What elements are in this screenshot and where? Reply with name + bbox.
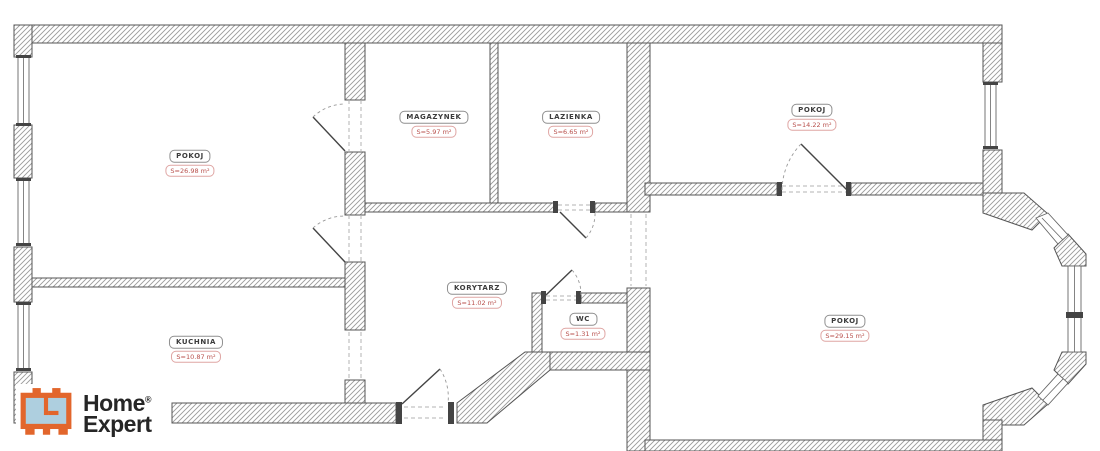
walls: [14, 25, 1086, 451]
wall-wc-left: [532, 293, 542, 352]
wall-wc-top: [581, 293, 627, 303]
wall-corridor-diagonal: [457, 352, 550, 423]
room-area: S=29.15 m²: [820, 330, 869, 342]
window-sills: [16, 55, 1083, 371]
door-leaf-entrance: [402, 369, 440, 404]
home-expert-logo-icon: [18, 386, 74, 442]
wall-left-pier-2: [14, 125, 32, 178]
room-area: S=11.02 m²: [452, 297, 501, 309]
wall-magazynek-lazienka: [490, 43, 498, 203]
room-area: S=10.87 m²: [171, 351, 220, 363]
door-leaf-pokoj2: [801, 144, 849, 192]
logo-icon-foot-1: [25, 426, 34, 434]
wall-left-pier-1: [14, 25, 32, 57]
wall-v1-a: [345, 43, 365, 100]
wall-v1-c: [345, 262, 365, 330]
registered-mark: ®: [145, 394, 151, 404]
room-label-lazienka: LAZIENKA S=6.65 m²: [542, 111, 600, 138]
bay-corner-bottom: [983, 388, 1048, 425]
home-expert-logo: Home® Expert: [16, 384, 158, 444]
wall-pokoj2-bottom-left: [645, 183, 777, 195]
wall-top: [16, 25, 1002, 43]
room-name: POKOJ: [791, 104, 833, 117]
room-name: MAGAZYNEK: [399, 111, 468, 124]
door-leaf-pokoj1-magazynek: [313, 117, 345, 151]
wall-left-pier-3: [14, 247, 32, 302]
logo-icon-inner-wall: [48, 411, 58, 415]
door-leaf-lazienka: [560, 212, 586, 238]
room-label-kuchnia: KUCHNIA S=10.87 m²: [169, 336, 223, 363]
room-name: KUCHNIA: [169, 336, 223, 349]
floor-plan-drawing: [0, 0, 1100, 451]
room-area: S=5.97 m²: [411, 126, 456, 138]
room-area: S=14.22 m²: [787, 119, 836, 131]
wall-pokoj2-right-pier-1: [983, 43, 1002, 82]
wall-maglaz-bottom-left: [365, 203, 555, 212]
room-area: S=6.65 m²: [548, 126, 593, 138]
room-area: S=26.98 m²: [165, 165, 214, 177]
room-name: POKOJ: [824, 315, 866, 328]
wall-pokoj2-bottom-right: [851, 183, 1002, 195]
floor-plan-page: POKOJ S=26.98 m² MAGAZYNEK S=5.97 m² LAZ…: [0, 0, 1100, 451]
bay-corner-top: [983, 193, 1048, 230]
wall-kitchen-top: [32, 278, 348, 287]
room-name: POKOJ: [169, 150, 211, 163]
logo-icon-tab-left: [33, 388, 41, 395]
wall-pokoj2-right-pier-2: [983, 150, 1002, 193]
room-label-pokoj-3: POKOJ S=29.15 m²: [820, 315, 869, 342]
room-name: LAZIENKA: [542, 111, 600, 124]
room-label-korytarz: KORYTARZ S=11.02 m²: [447, 282, 507, 309]
window-bay-mullion: [1066, 312, 1083, 318]
wall-v1-b: [345, 152, 365, 215]
room-label-pokoj-1: POKOJ S=26.98 m²: [165, 150, 214, 177]
door-leaf-pokoj1-korytarz: [313, 228, 345, 262]
logo-icon-tab-right: [52, 388, 60, 395]
room-label-wc: WC S=1.31 m²: [560, 313, 605, 340]
home-expert-logo-text: Home® Expert: [83, 393, 152, 435]
logo-word-expert: Expert: [83, 414, 152, 435]
wall-bottom-left: [172, 403, 396, 423]
room-name: WC: [569, 313, 597, 326]
room-label-magazynek: MAGAZYNEK S=5.97 m²: [399, 111, 468, 138]
logo-icon-divider: [44, 395, 48, 415]
logo-icon-foot-3: [58, 426, 67, 434]
wall-maglaz-bottom-right: [595, 203, 627, 212]
door-leaf-wc: [546, 270, 572, 295]
room-name: KORYTARZ: [447, 282, 507, 295]
wall-pokoj3-bottom: [645, 440, 1002, 451]
room-label-pokoj-2: POKOJ S=14.22 m²: [787, 104, 836, 131]
room-area: S=1.31 m²: [560, 328, 605, 340]
logo-icon-foot-2: [43, 426, 50, 434]
